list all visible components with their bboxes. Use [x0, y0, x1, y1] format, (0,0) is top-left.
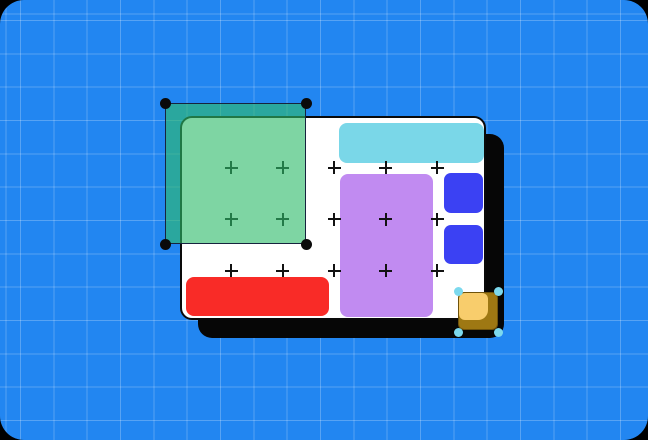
alignment-cross: [328, 213, 341, 226]
cyan-bar[interactable]: [339, 123, 484, 163]
yellow-selection-handle-top-left[interactable]: [454, 287, 463, 296]
green-selection-handle-top-right[interactable]: [301, 98, 312, 109]
yellow-selection-handle-top-right[interactable]: [494, 287, 503, 296]
alignment-cross: [431, 161, 444, 174]
alignment-cross: [379, 161, 392, 174]
design-workspace-canvas[interactable]: [0, 0, 648, 440]
yellow-square[interactable]: [459, 293, 488, 320]
alignment-cross: [431, 213, 444, 226]
alignment-cross: [431, 264, 444, 277]
selected-green-rectangle[interactable]: [165, 103, 306, 244]
alignment-cross: [379, 264, 392, 277]
alignment-cross: [379, 213, 392, 226]
yellow-selection-handle-bottom-left[interactable]: [454, 328, 463, 337]
green-selection-handle-top-left[interactable]: [160, 98, 171, 109]
green-selection-handle-bottom-left[interactable]: [160, 239, 171, 250]
blue-square-2[interactable]: [444, 225, 483, 264]
red-bar[interactable]: [186, 277, 329, 316]
green-selection-handle-bottom-right[interactable]: [301, 239, 312, 250]
yellow-selection-handle-bottom-right[interactable]: [494, 328, 503, 337]
blue-square-1[interactable]: [444, 173, 483, 213]
alignment-cross: [328, 264, 341, 277]
purple-rect[interactable]: [340, 174, 433, 317]
alignment-cross: [225, 264, 238, 277]
alignment-cross: [328, 161, 341, 174]
alignment-cross: [276, 264, 289, 277]
